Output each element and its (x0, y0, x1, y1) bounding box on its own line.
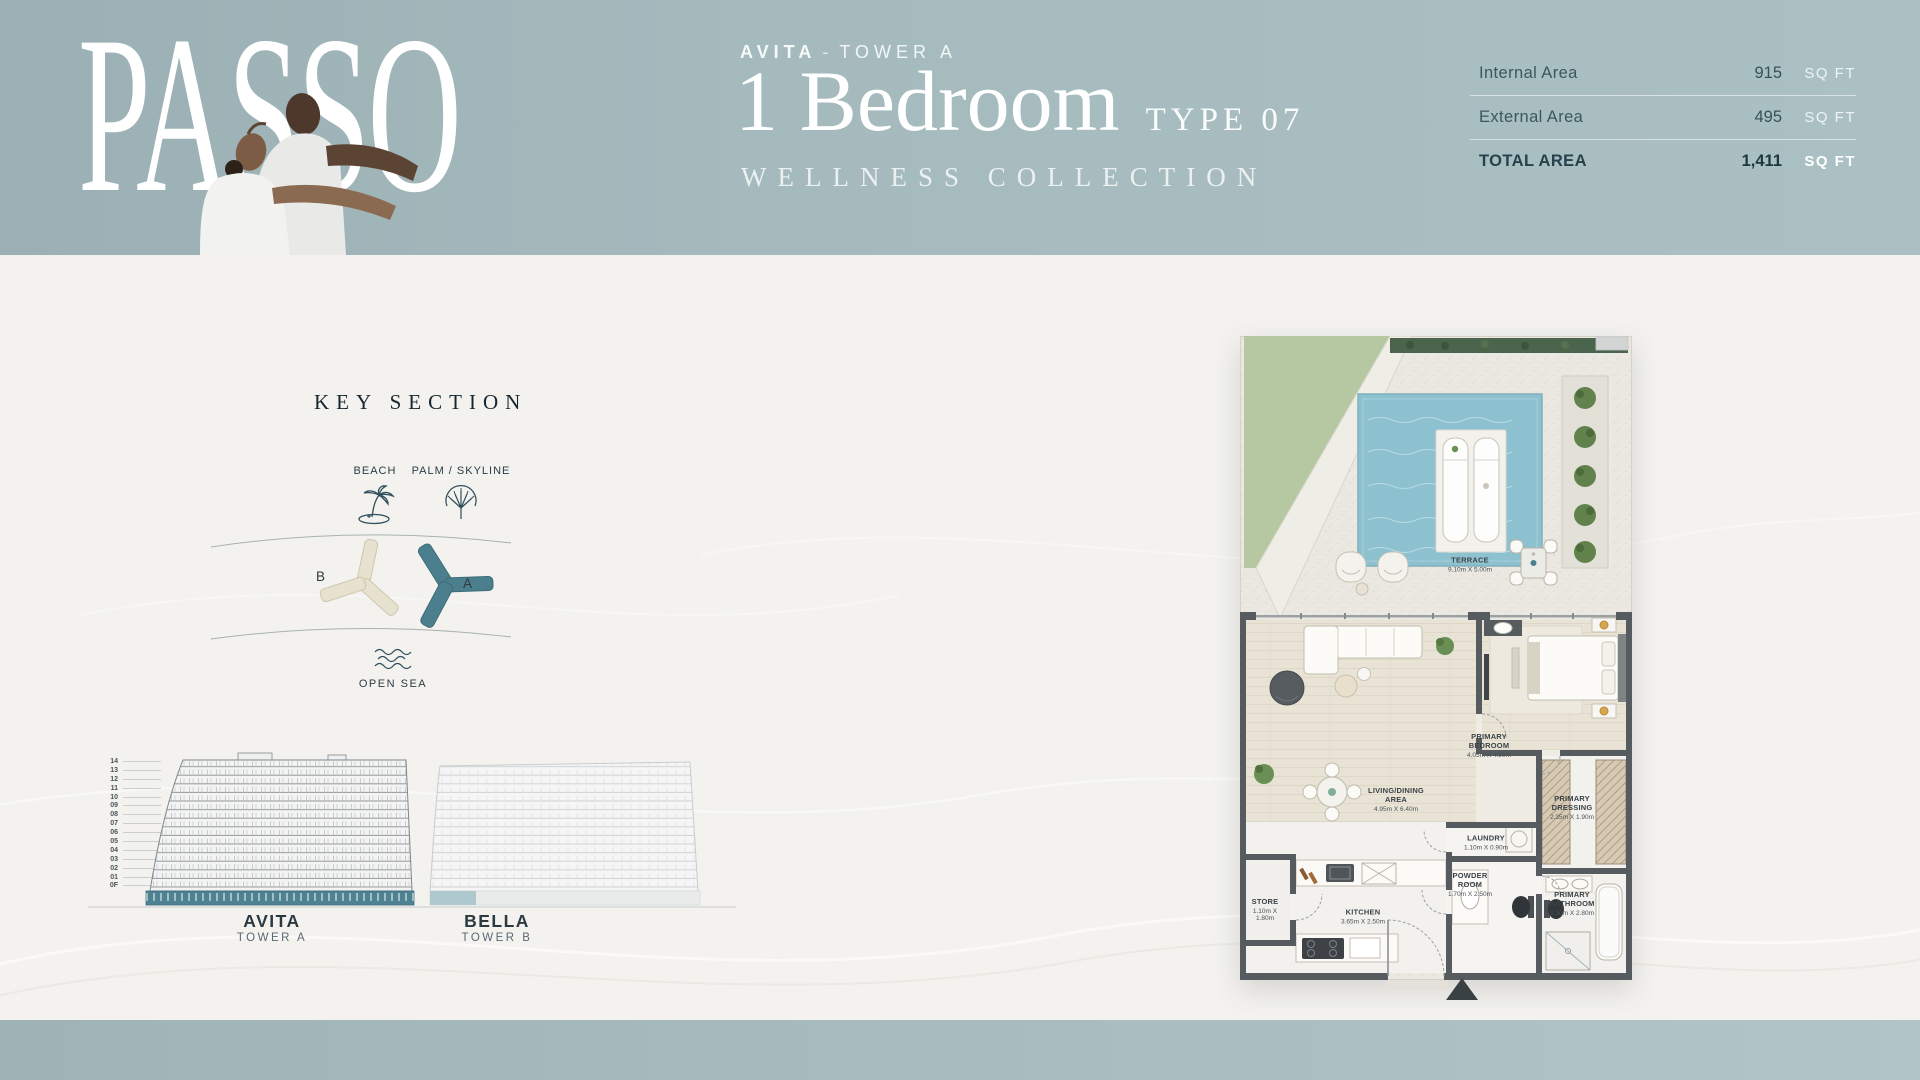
avita-elevation (146, 753, 414, 905)
tower-b-shape (317, 533, 413, 619)
room-label-kitchen: KITCHEN 3.65m X 2.50m (1328, 909, 1398, 926)
building-avita-name: AVITA (243, 911, 300, 932)
area-unit: SQ FT (1782, 65, 1856, 82)
open-sea-label: OPEN SEA (359, 678, 427, 690)
area-unit: SQ FT (1782, 109, 1856, 126)
building-bella-name: BELLA (464, 911, 530, 932)
area-table: Internal Area 915 SQ FT External Area 49… (1470, 52, 1856, 183)
landmark-label-palm-skyline: PALM / SKYLINE (412, 465, 511, 477)
elevation-drawing (88, 750, 736, 914)
unit-type-code: TYPE 07 (1146, 102, 1305, 138)
brochure-page: PASSO AVITA-TOWER A 1 BedroomTYPE 07 WEL… (0, 0, 1920, 1080)
bella-elevation (430, 762, 700, 905)
area-value: 1,411 (1696, 152, 1782, 171)
room-label-primary-bedroom: PRIMARY BEDROOM 4.05m X 4.90m (1457, 733, 1521, 759)
room-label-terrace: TERRACE 9.10m X 5.00m (1435, 557, 1505, 574)
collection-label: WELLNESS COLLECTION (741, 162, 1267, 193)
room-label-primary-bathroom: PRIMARY BATHROOM 2.30m X 2.80m (1542, 891, 1602, 917)
area-label: External Area (1479, 108, 1696, 127)
area-label: Internal Area (1479, 64, 1696, 83)
room-label-living-dining: LIVING/DINING AREA 4.95m X 6.40m (1363, 787, 1429, 813)
tower-a-label: A (463, 576, 473, 591)
area-value: 915 (1696, 64, 1782, 83)
entry-arrow-icon (1446, 978, 1478, 1000)
room-label-primary-dressing: PRIMARY DRESSING 2.35m X 1.90m (1544, 795, 1600, 821)
room-label-powder-room: POWDER ROOM 1.70m X 2.50m (1445, 872, 1495, 898)
area-row-internal: Internal Area 915 SQ FT (1470, 52, 1856, 96)
area-row-external: External Area 495 SQ FT (1470, 96, 1856, 140)
tower-footprints (295, 533, 530, 643)
area-label: TOTAL AREA (1479, 152, 1696, 171)
building-bella-tower: TOWER B (462, 932, 533, 944)
room-label-store: STORE 1.10m X 1.80m (1245, 898, 1285, 922)
building-avita-tower: TOWER A (237, 932, 307, 944)
dancers-image (100, 72, 430, 255)
area-value: 495 (1696, 108, 1782, 127)
landmark-label-beach: BEACH (354, 465, 397, 477)
footer-band (0, 1020, 1920, 1080)
header-band: PASSO AVITA-TOWER A 1 BedroomTYPE 07 WEL… (0, 0, 1920, 255)
area-unit: SQ FT (1782, 153, 1856, 170)
room-label-laundry: LAUNDRY 1.10m X 0.90m (1456, 835, 1516, 852)
tower-b-label: B (316, 569, 326, 584)
unit-type-heading: 1 BedroomTYPE 07 (735, 58, 1304, 144)
key-section-title: KEY SECTION (314, 390, 527, 415)
unit-type-title: 1 Bedroom (735, 53, 1120, 149)
tower-a-shape (386, 533, 499, 633)
area-row-total: TOTAL AREA 1,411 SQ FT (1470, 140, 1856, 183)
waves-icon (371, 647, 417, 673)
